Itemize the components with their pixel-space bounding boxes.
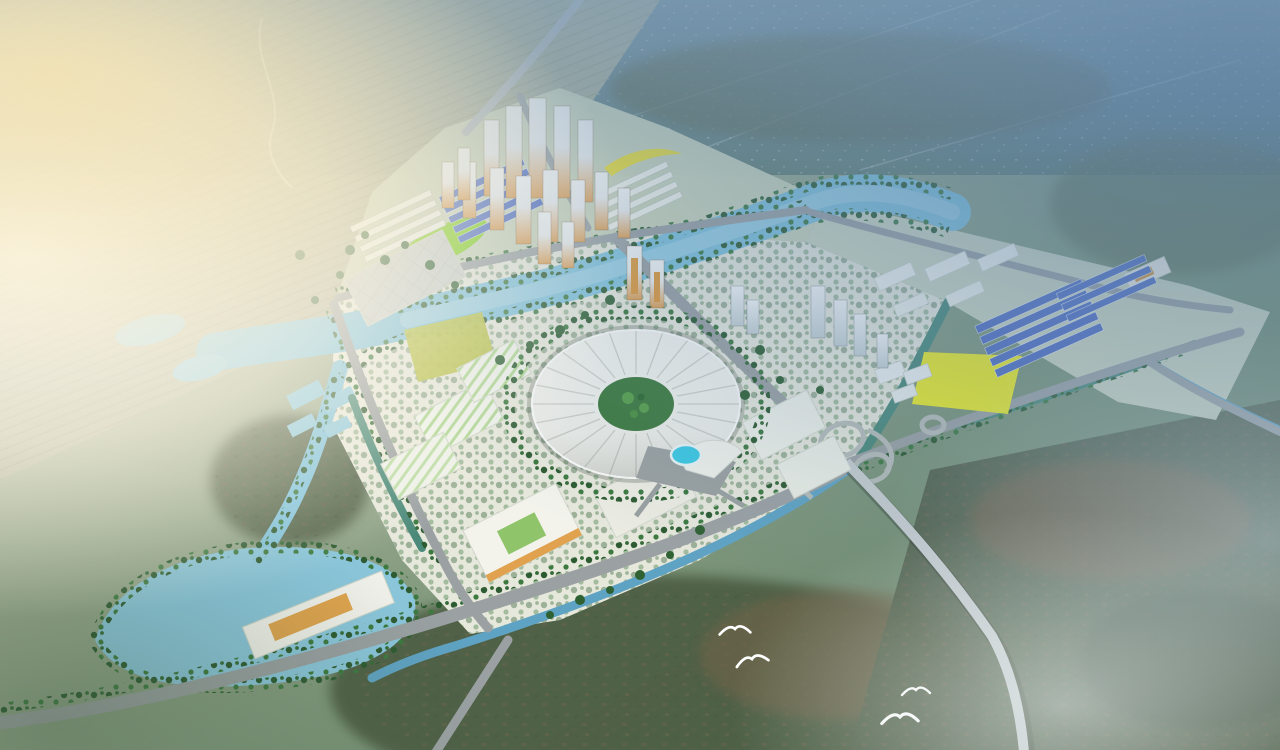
aerial-rendering-canvas (0, 0, 1280, 750)
atmosphere-overlays (0, 0, 1280, 750)
aerial-rendering (0, 0, 1280, 750)
